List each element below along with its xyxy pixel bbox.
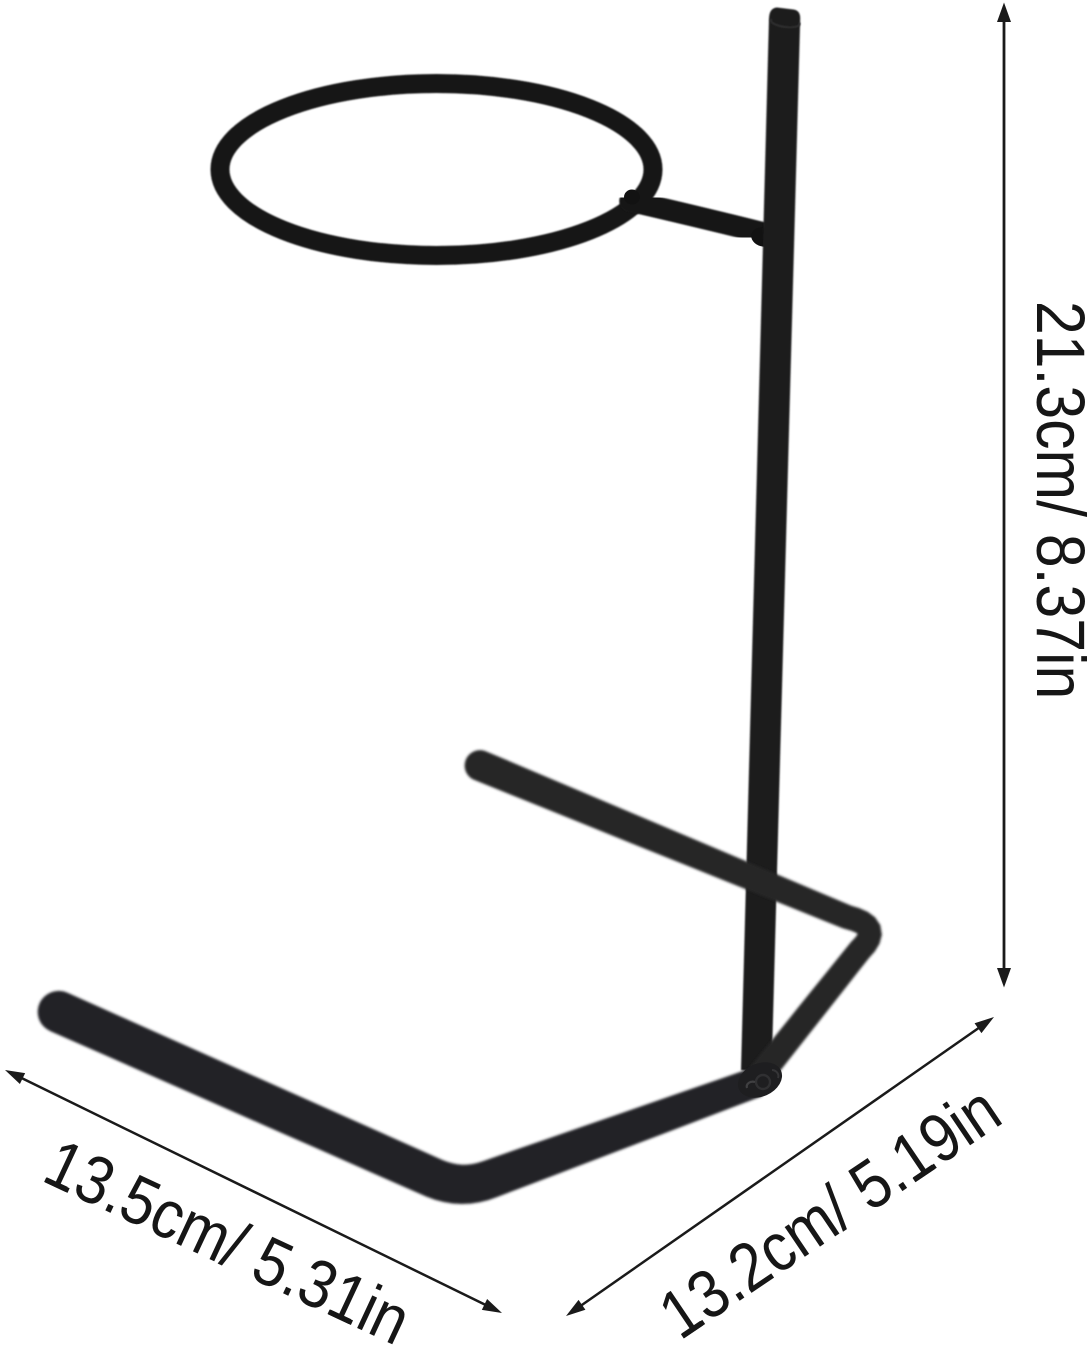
svg-text:21.3cm/ 8.37in: 21.3cm/ 8.37in [1022, 301, 1089, 699]
